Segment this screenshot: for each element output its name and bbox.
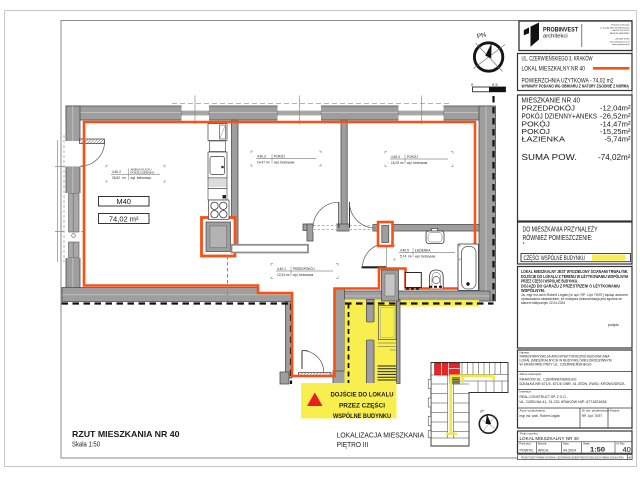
svg-text:-74,02m²: -74,02m² <box>598 153 631 162</box>
svg-text:4.40.1: 4.40.1 <box>277 267 286 271</box>
svg-text:4.40.5: 4.40.5 <box>400 249 409 253</box>
svg-text:podpis: podpis <box>608 323 619 327</box>
svg-text:Probinvest Estudio: Probinvest Estudio <box>611 24 630 27</box>
svg-text:PRZEZ CZĘŚCI: PRZEZ CZĘŚCI <box>339 401 385 410</box>
svg-text:15,25: 15,25 <box>391 161 399 165</box>
svg-text:74,02 m²: 74,02 m² <box>109 215 139 224</box>
svg-text:M40: M40 <box>116 197 131 206</box>
svg-text:40: 40 <box>623 445 631 454</box>
svg-text:12,04: 12,04 <box>277 273 285 277</box>
svg-text:0,5: 0,5 <box>492 82 498 87</box>
svg-text:LOKAL MIESZKALNY NR 40: LOKAL MIESZKALNY NR 40 <box>520 436 580 441</box>
svg-text:+48 676 116 26 16: +48 676 116 26 16 <box>611 30 630 32</box>
svg-text:wyl. betonowa: wyl. betonowa <box>415 254 435 258</box>
svg-text:1:50: 1:50 <box>590 447 605 454</box>
svg-text:RP- Upr. 70/97: RP- Upr. 70/97 <box>582 414 602 418</box>
svg-text:-5,74m²: -5,74m² <box>605 135 631 144</box>
svg-text:architekci: architekci <box>543 34 568 40</box>
svg-text:Adres inwestycji:: Adres inwestycji: <box>520 372 543 376</box>
svg-text:Treść rysunku:: Treść rysunku: <box>520 432 539 436</box>
svg-text:wyl. betonowa: wyl. betonowa <box>407 161 427 165</box>
svg-text:POKÓJ: POKÓJ <box>407 154 418 159</box>
svg-text:DOJŚCIE DO LOKALU: DOJŚCIE DO LOKALU <box>331 390 394 399</box>
svg-text:www.probinvest.pl: www.probinvest.pl <box>612 43 630 46</box>
svg-text:biuro@probinvest.pl: biuro@probinvest.pl <box>610 40 630 43</box>
svg-text:mgr inż. arch. Robert Legiat: mgr inż. arch. Robert Legiat <box>520 414 560 418</box>
svg-text:UL. DZIELNA 41, 31-231 KRAKÓW: UL. DZIELNA 41, 31-231 KRAKÓW NIP: 67718… <box>520 399 607 404</box>
svg-text:ul. Zawiła 65E, 30-390 Kraków: ul. Zawiła 65E, 30-390 Kraków <box>600 26 630 29</box>
svg-text:ŁAZIENKA: ŁAZIENKA <box>522 135 567 144</box>
svg-text:W KRAKOWIE PRZY UL. CZERWIEŃSK: W KRAKOWIE PRZY UL. CZERWIEŃSKIEGO <box>520 363 592 367</box>
svg-text:m²: m² <box>286 273 290 277</box>
svg-text:ARCH.: ARCH. <box>538 448 549 452</box>
svg-text:POKÓJ: POKÓJ <box>274 154 285 159</box>
svg-text:ŁAZIENKA: ŁAZIENKA <box>415 249 431 253</box>
svg-text:CZĘŚCI WSPÓLNE BUDYNKU: CZĘŚCI WSPÓLNE BUDYNKU <box>524 254 586 262</box>
svg-text:POKÓJ DZIENNY: POKÓJ DZIENNY <box>131 170 155 175</box>
svg-text:REGON 363633342: REGON 363633342 <box>610 33 630 35</box>
svg-text:*: * <box>523 242 525 248</box>
svg-text:m²: m² <box>123 176 127 180</box>
svg-text:Skala:: Skala: <box>583 442 590 446</box>
svg-text:Faza proj.:: Faza proj.: <box>520 442 533 446</box>
svg-text:m²: m² <box>408 254 412 258</box>
svg-text:WYMIARY PODANO WG OBMIARU Z NA: WYMIARY PODANO WG OBMIARU Z NATURY ZGODN… <box>522 84 630 89</box>
svg-text:DZIAŁKA NR 671/4, 671/6 OBR. 4: DZIAŁKA NR 671/4, 671/6 OBR. 41 JEDN. EW… <box>520 382 626 386</box>
svg-text:PIĘTRO III: PIĘTRO III <box>337 442 369 449</box>
svg-text:26,52: 26,52 <box>112 176 120 180</box>
svg-text:Branża:: Branża: <box>538 442 547 446</box>
svg-text:LOKAL MIESZKALNY NR 40: LOKAL MIESZKALNY NR 40 <box>522 66 586 73</box>
svg-text:04.2024: 04.2024 <box>563 448 576 452</box>
svg-text:Data:: Data: <box>563 442 569 446</box>
svg-text:stanem faktycznym 22.04.2024: stanem faktycznym 22.04.2024 <box>521 301 565 305</box>
svg-text:UL. CZERWIEŃSKIEGO 3, KRAKÓW: UL. CZERWIEŃSKIEGO 3, KRAKÓW <box>522 53 593 62</box>
svg-text:PROBINVEST: PROBINVEST <box>543 27 578 34</box>
svg-text:m²: m² <box>266 160 270 164</box>
svg-text:+48 0345 33 95: +48 0345 33 95 <box>614 39 630 41</box>
svg-text:Nr upr. projektowych:: Nr upr. projektowych: <box>582 409 610 413</box>
svg-text:POWYK.: POWYK. <box>520 448 534 452</box>
svg-text:PRZEDPOKÓJ: PRZEDPOKÓJ <box>293 266 315 271</box>
svg-text:m²: m² <box>400 161 404 165</box>
svg-text:RÓWNIEŻ POMIESZCZENIE:: RÓWNIEŻ POMIESZCZENIE: <box>523 233 593 242</box>
svg-text:wyl. betonowa: wyl. betonowa <box>293 273 313 277</box>
svg-text:RZUT MIESZKANIA NR 40: RZUT MIESZKANIA NR 40 <box>72 430 180 439</box>
svg-text:4.40.4: 4.40.4 <box>391 155 400 159</box>
svg-text:PROJEKT OBJĘTY PRAWAMI AUTORSK: PROJEKT OBJĘTY PRAWAMI AUTORSKIMI. UDOST… <box>521 456 624 459</box>
svg-text:14,47: 14,47 <box>257 160 265 164</box>
svg-text:Autor opracowania:: Autor opracowania: <box>520 409 546 413</box>
svg-text:Podpis:: Podpis: <box>610 409 620 413</box>
svg-text:LOKALIZACJA MIESZKANIA: LOKALIZACJA MIESZKANIA <box>337 432 425 439</box>
svg-text:REAL-CONSTRUCT SP. Z O.O.,: REAL-CONSTRUCT SP. Z O.O., <box>520 395 568 399</box>
svg-text:SUMA POW.: SUMA POW. <box>522 153 578 162</box>
svg-text:wyl. betonowa: wyl. betonowa <box>131 176 151 180</box>
svg-text:WSPÓLNE BUDYNKU: WSPÓLNE BUDYNKU <box>333 411 391 420</box>
svg-text:Skala 1:50: Skala 1:50 <box>72 439 100 448</box>
svg-text:4.40.2: 4.40.2 <box>112 170 121 174</box>
svg-text:wyl. betonowa: wyl. betonowa <box>274 160 294 164</box>
svg-text:5,74: 5,74 <box>400 254 406 258</box>
svg-text:4.40.3: 4.40.3 <box>257 155 266 159</box>
svg-text:KRAKÓW UL. CZERWIEŃSKIEGO: KRAKÓW UL. CZERWIEŃSKIEGO <box>520 377 577 382</box>
svg-text:Inwestor:: Inwestor: <box>520 390 532 394</box>
